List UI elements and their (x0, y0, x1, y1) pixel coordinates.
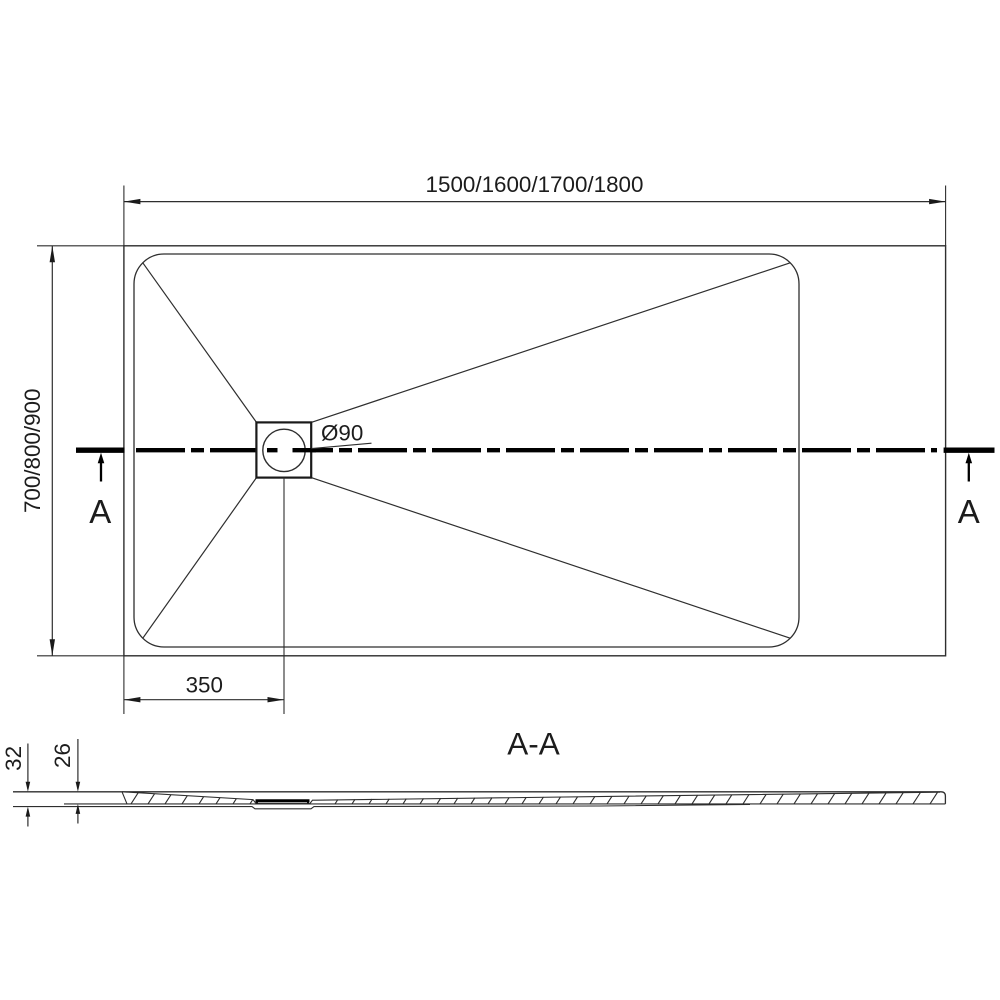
svg-text:1500/1600/1700/1800: 1500/1600/1700/1800 (426, 172, 644, 197)
svg-text:A-A: A-A (507, 726, 560, 762)
svg-text:350: 350 (186, 672, 223, 697)
svg-text:A: A (89, 493, 111, 530)
svg-text:A: A (958, 493, 980, 530)
svg-text:700/800/900: 700/800/900 (20, 389, 45, 514)
svg-text:26: 26 (50, 743, 75, 768)
svg-text:Ø90: Ø90 (321, 421, 363, 446)
svg-text:32: 32 (1, 746, 26, 771)
